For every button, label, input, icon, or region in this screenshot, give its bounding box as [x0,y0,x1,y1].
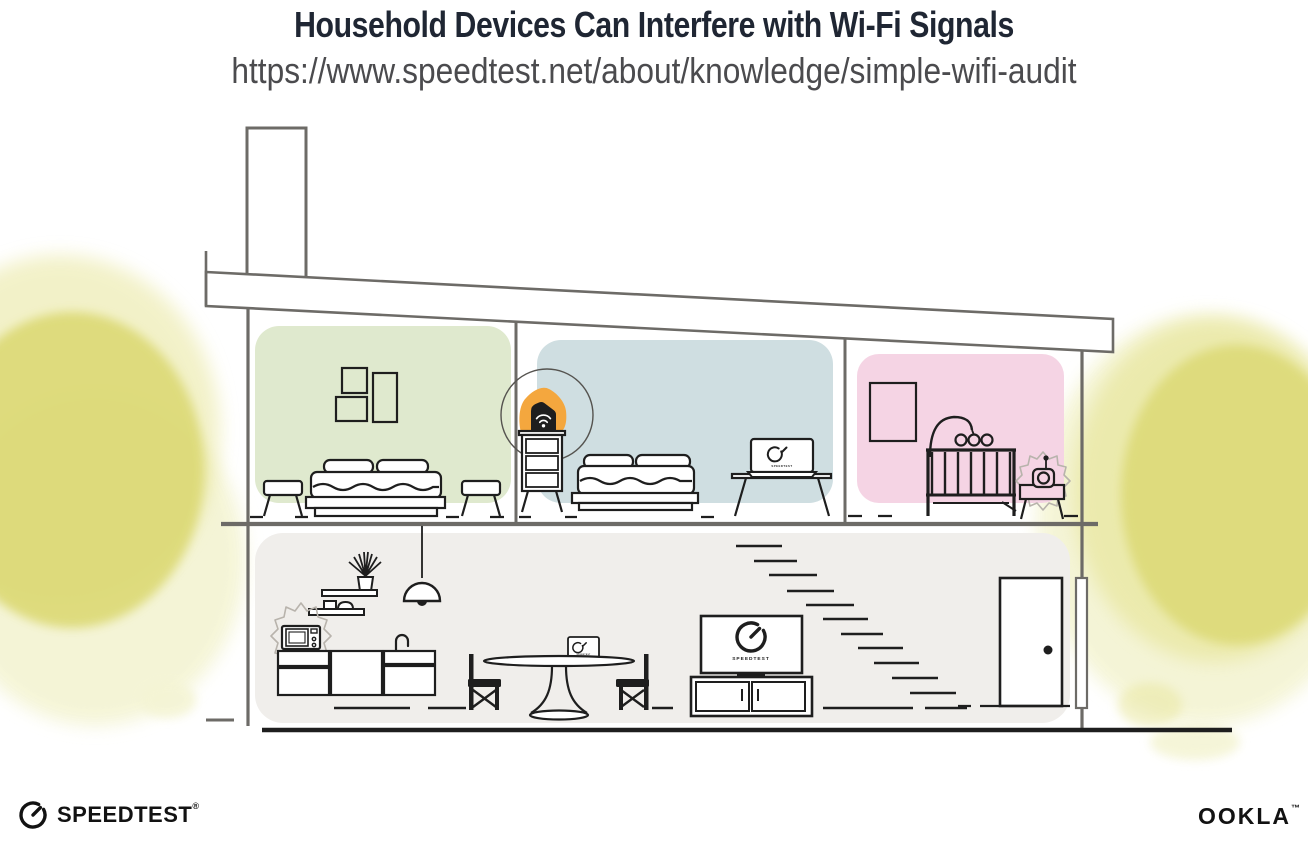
speedtest-gauge-icon [18,799,50,831]
bedroom-laptop-screen-label: SPEEDTEST [771,464,792,468]
downspout [1076,578,1087,708]
house-cutaway-illustration: SPEEDTEST [0,0,1308,861]
laptop-bedroom: SPEEDTEST [748,439,816,477]
speedtest-logo: SPEEDTEST® [18,799,199,831]
tree-left [0,255,245,725]
tv-console [691,677,812,716]
speedtest-wordmark: SPEEDTEST® [57,802,199,828]
tv: SPEEDTEST [701,616,802,675]
chimney [247,128,306,286]
ookla-wordmark: OOKLA [1198,803,1291,829]
ookla-logo: OOKLA™ [1198,803,1300,830]
router-dresser [519,431,565,512]
registered-mark: ® [192,801,199,811]
microwave [282,626,320,649]
infographic-page: Household Devices Can Interfere with Wi-… [0,0,1308,861]
tv-screen-label: SPEEDTEST [732,656,770,662]
tv-area: SPEEDTEST [691,616,812,716]
door-knob [1044,646,1053,655]
trademark-mark: ™ [1291,803,1300,813]
